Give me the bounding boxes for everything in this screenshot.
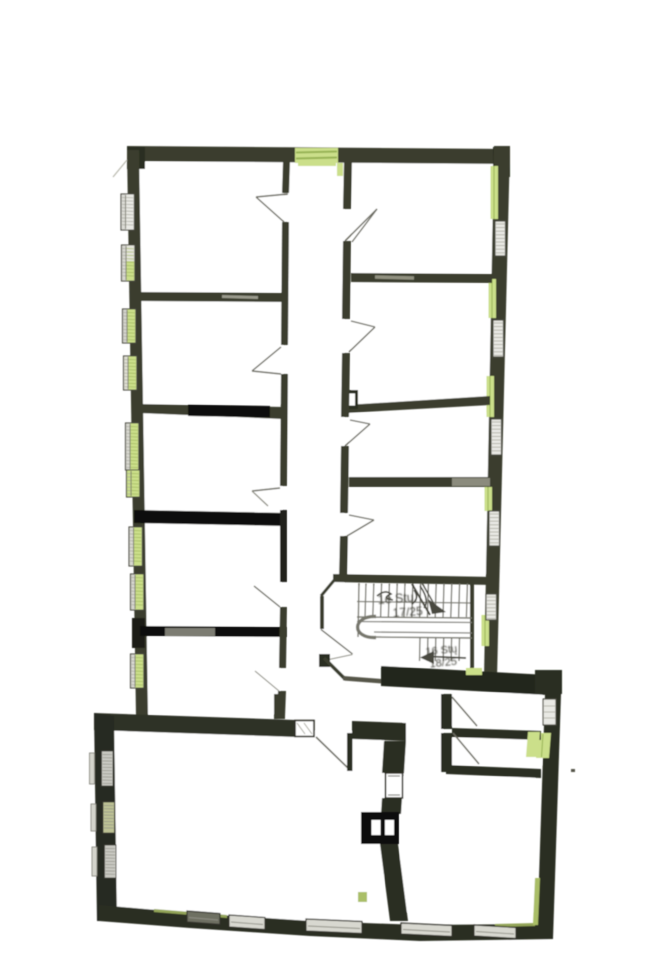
svg-text:17/25: 17/25: [392, 604, 423, 620]
